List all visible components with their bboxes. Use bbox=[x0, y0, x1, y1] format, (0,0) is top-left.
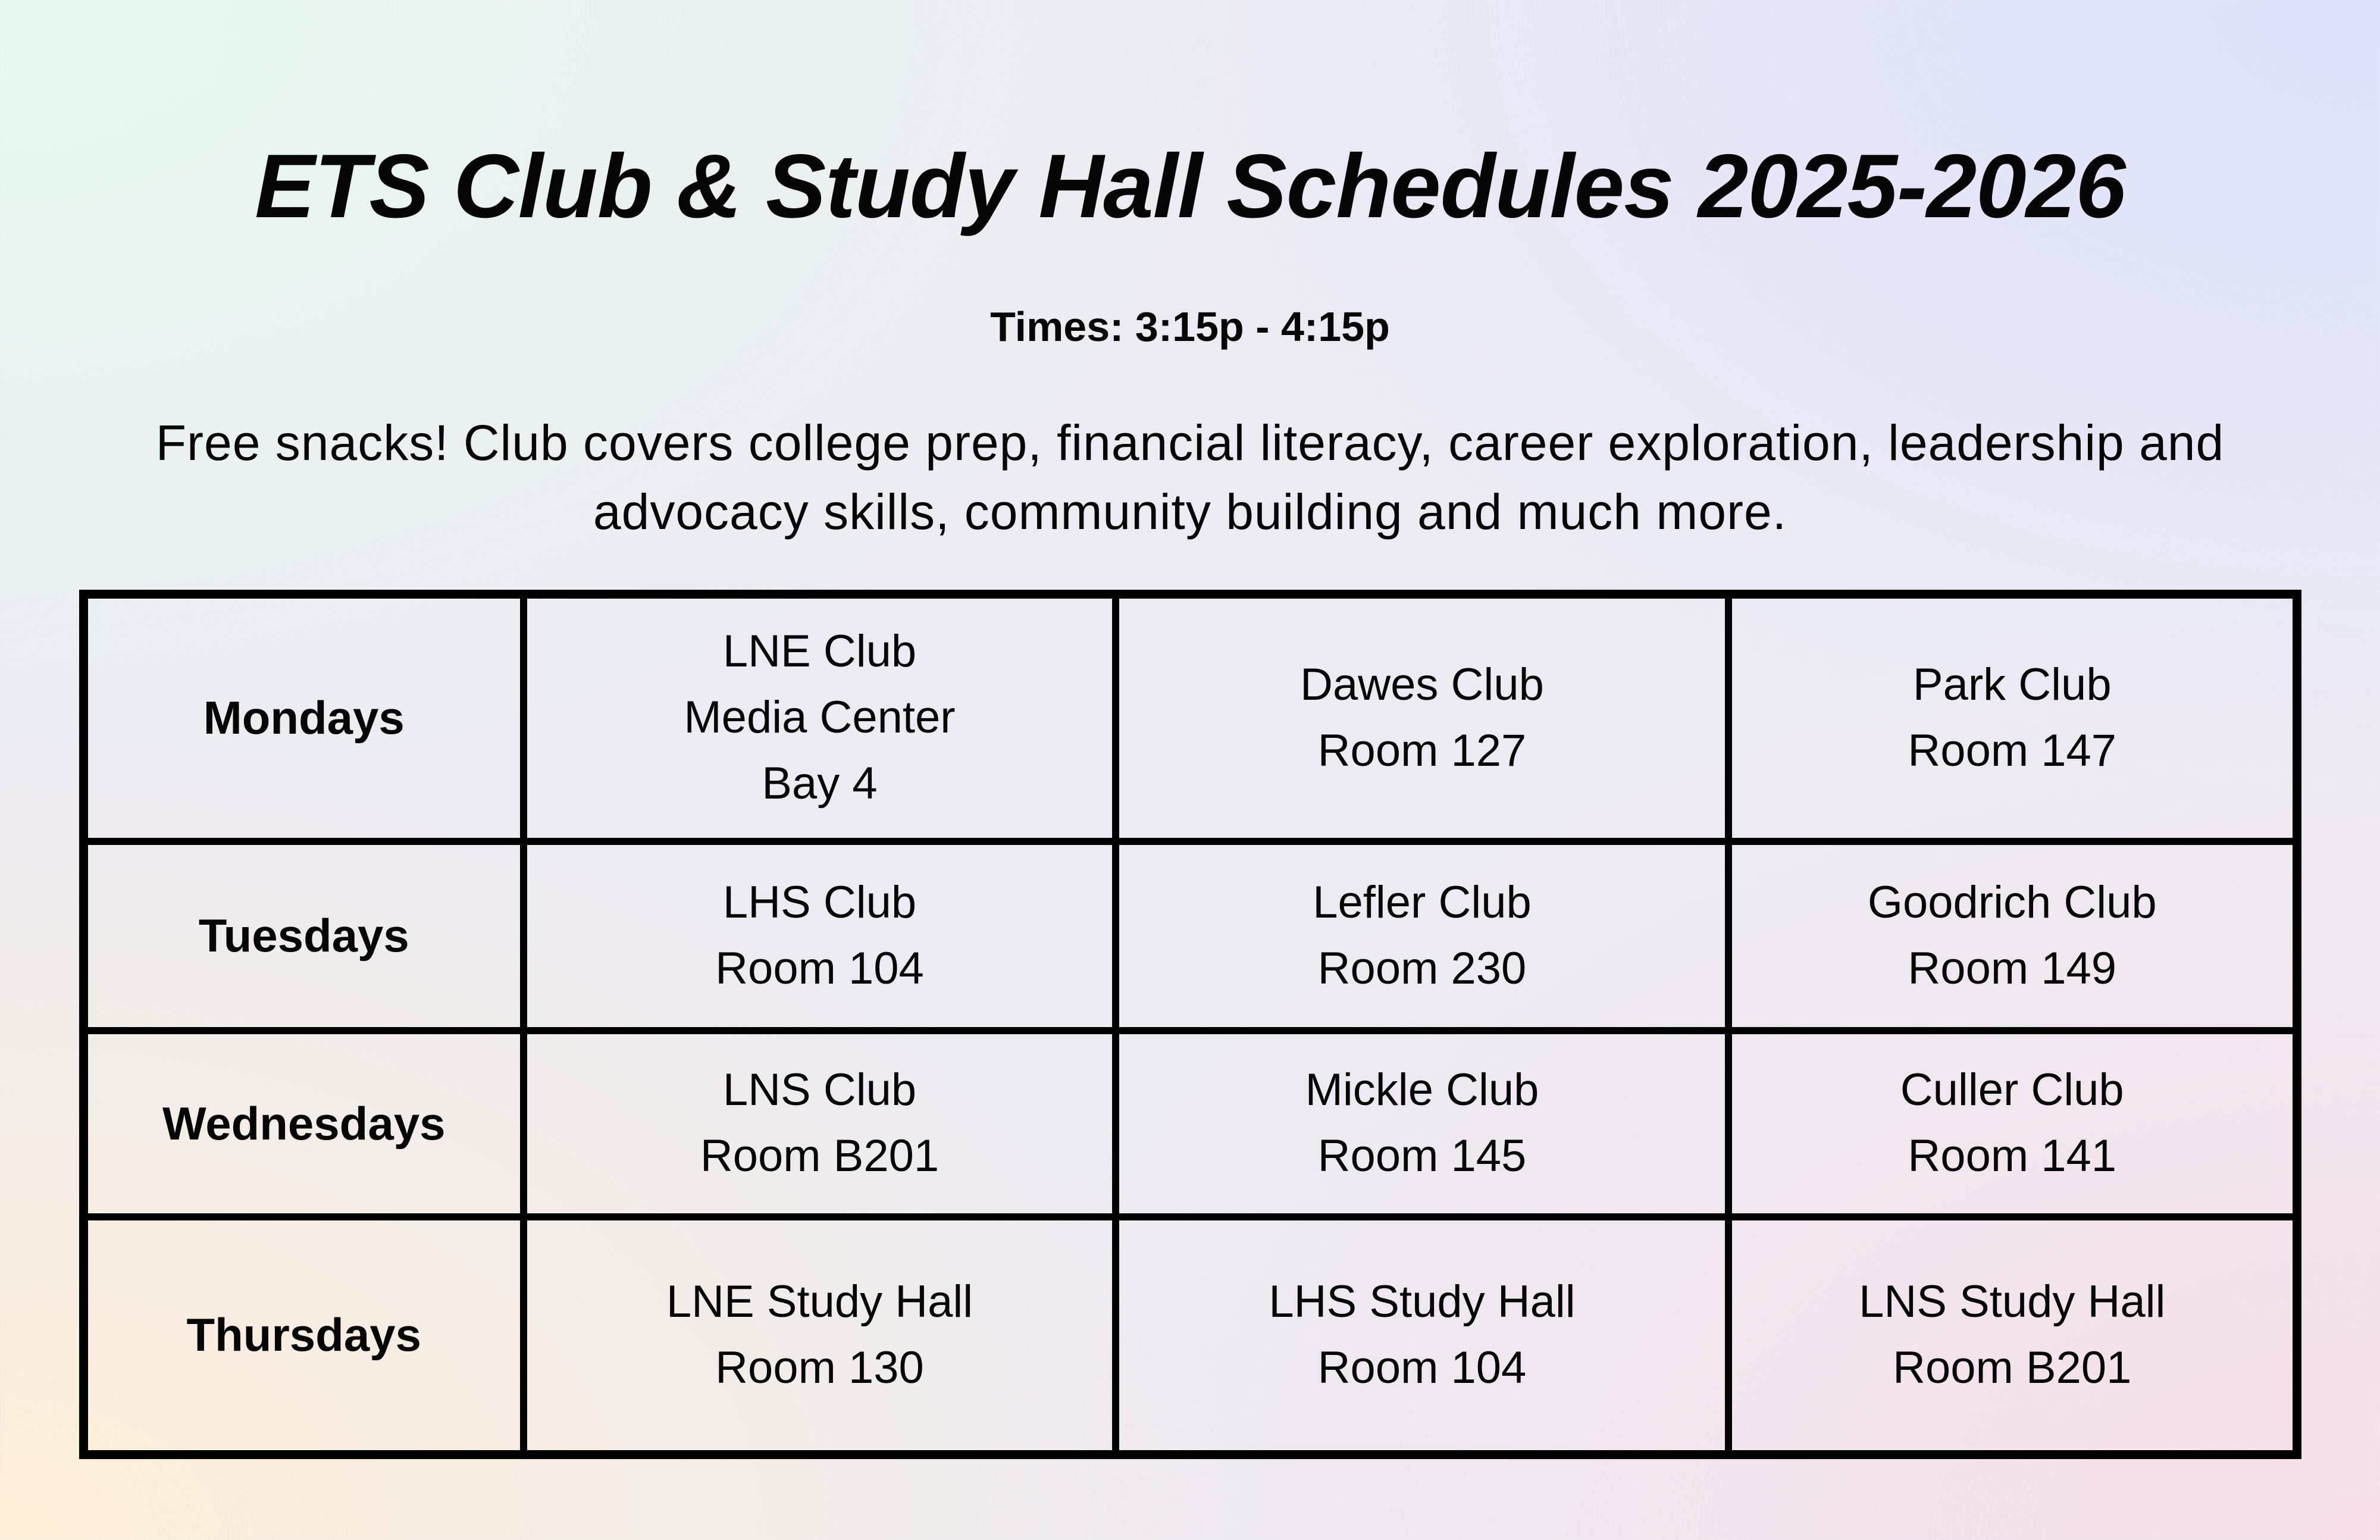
club-cell: LHS Club Room 104 bbox=[524, 841, 1116, 1031]
cell-line: Room 141 bbox=[1732, 1123, 2293, 1190]
cell-line: Park Club bbox=[1732, 652, 2293, 718]
table-row-wednesdays: Wednesdays LNS Club Room B201 Mickle Clu… bbox=[83, 1031, 2297, 1217]
cell-line: Culler Club bbox=[1732, 1057, 2293, 1123]
cell-line: Mickle Club bbox=[1119, 1057, 1725, 1123]
cell-line: Room 149 bbox=[1732, 936, 2293, 1002]
cell-line: Media Center bbox=[527, 685, 1112, 751]
flyer-page: { "header": { "title": "ETS Club & Study… bbox=[0, 137, 2380, 1540]
club-cell: LNS Club Room B201 bbox=[524, 1031, 1116, 1217]
cell-line: Bay 4 bbox=[527, 751, 1112, 817]
cell-line: Room 104 bbox=[1119, 1335, 1725, 1401]
cell-line: LNE Study Hall bbox=[527, 1269, 1112, 1335]
club-cell: Mickle Club Room 145 bbox=[1116, 1031, 1728, 1217]
page-title: ETS Club & Study Hall Schedules 2025-202… bbox=[36, 137, 2344, 236]
cell-line: LNE Club bbox=[527, 619, 1112, 685]
table-row-thursdays: Thursdays LNE Study Hall Room 130 LHS St… bbox=[83, 1217, 2297, 1455]
cell-line: Room 104 bbox=[527, 936, 1112, 1002]
day-cell-thursdays: Thursdays bbox=[83, 1217, 524, 1455]
cell-line: Room 147 bbox=[1732, 718, 2293, 784]
cell-line: LHS Club bbox=[527, 870, 1112, 936]
intro-text: Free snacks! Club covers college prep, f… bbox=[0, 409, 2380, 547]
club-cell: Lefler Club Room 230 bbox=[1116, 841, 1728, 1031]
cell-line: Room B201 bbox=[1732, 1335, 2293, 1401]
cell-line: Room 127 bbox=[1119, 718, 1725, 784]
day-cell-wednesdays: Wednesdays bbox=[83, 1031, 524, 1217]
intro-line-1: Free snacks! Club covers college prep, f… bbox=[0, 409, 2380, 478]
cell-line: Room B201 bbox=[527, 1123, 1112, 1190]
intro-line-2: advocacy skills, community building and … bbox=[0, 478, 2380, 547]
times-subtitle: Times: 3:15p - 4:15p bbox=[0, 302, 2380, 352]
cell-line: LHS Study Hall bbox=[1119, 1269, 1725, 1335]
cell-line: LNS Study Hall bbox=[1732, 1269, 2293, 1335]
cell-line: Room 230 bbox=[1119, 936, 1725, 1002]
club-cell: Culler Club Room 141 bbox=[1728, 1031, 2297, 1217]
club-cell: LNE Study Hall Room 130 bbox=[524, 1217, 1116, 1455]
table-row-mondays: Mondays LNE Club Media Center Bay 4 Dawe… bbox=[83, 594, 2297, 841]
cell-line: Lefler Club bbox=[1119, 870, 1725, 936]
club-cell: LNS Study Hall Room B201 bbox=[1728, 1217, 2297, 1455]
club-cell: Park Club Room 147 bbox=[1728, 594, 2297, 841]
cell-line: LNS Club bbox=[527, 1057, 1112, 1123]
day-cell-tuesdays: Tuesdays bbox=[83, 841, 524, 1031]
cell-line: Room 145 bbox=[1119, 1123, 1725, 1190]
club-cell: LHS Study Hall Room 104 bbox=[1116, 1217, 1728, 1455]
club-cell: Dawes Club Room 127 bbox=[1116, 594, 1728, 841]
club-cell: Goodrich Club Room 149 bbox=[1728, 841, 2297, 1031]
day-cell-mondays: Mondays bbox=[83, 594, 524, 841]
table-row-tuesdays: Tuesdays LHS Club Room 104 Lefler Club R… bbox=[83, 841, 2297, 1031]
club-cell: LNE Club Media Center Bay 4 bbox=[524, 594, 1116, 841]
cell-line: Dawes Club bbox=[1119, 652, 1725, 718]
cell-line: Room 130 bbox=[527, 1335, 1112, 1401]
schedule-table: Mondays LNE Club Media Center Bay 4 Dawe… bbox=[79, 590, 2301, 1459]
cell-line: Goodrich Club bbox=[1732, 870, 2293, 936]
